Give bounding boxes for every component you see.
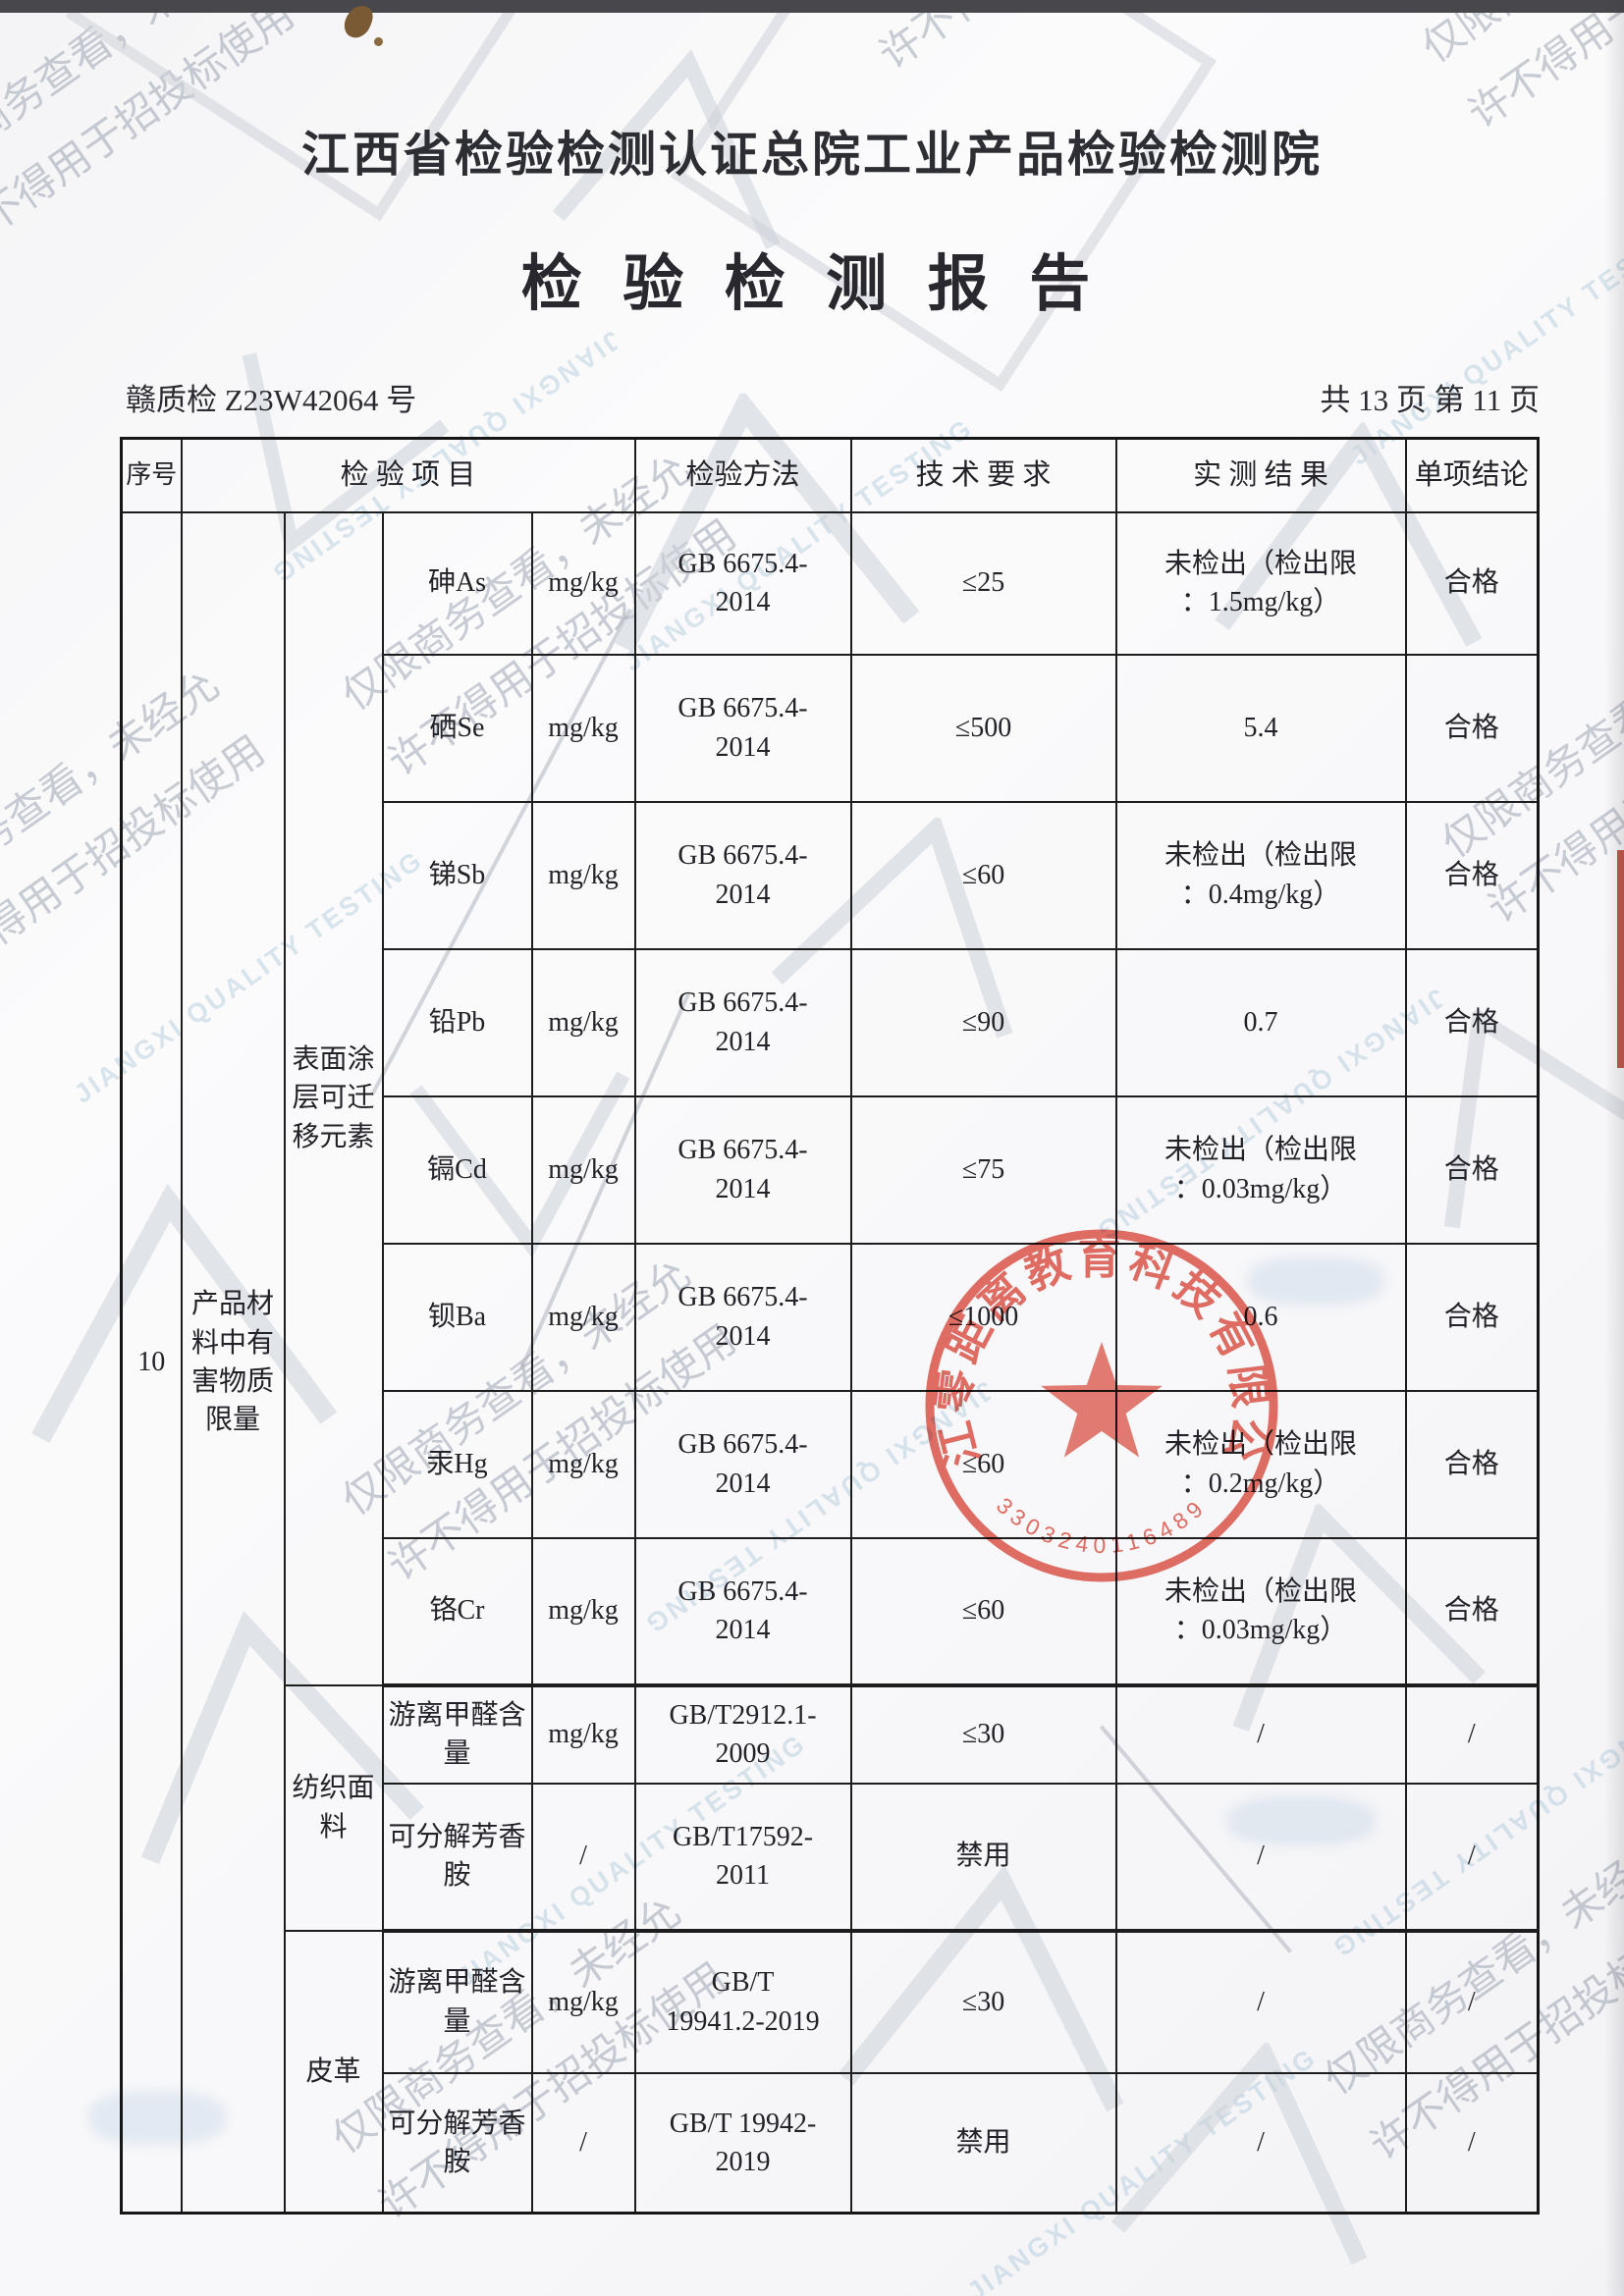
unit-cell: mg/kg: [532, 1931, 635, 2073]
requirement-cell: ≤500: [851, 655, 1116, 802]
conclusion-cell: 合格: [1406, 1391, 1539, 1538]
conclusion-cell: /: [1406, 1685, 1539, 1784]
conclusion-cell: 合格: [1406, 1538, 1539, 1685]
item-name-cell: 铬Cr: [383, 1538, 532, 1685]
unit-cell: mg/kg: [532, 802, 635, 949]
result-cell: 未检出（检出限 ：0.4mg/kg）: [1116, 802, 1406, 949]
scan-red-mark: [1617, 850, 1624, 1068]
stamp-serial-text: 3303240116489: [992, 1492, 1212, 1558]
page-title: 江西省检验检测认证总院工业产品检验检测院: [0, 116, 1624, 186]
method-cell: GB 6675.4- 2014: [635, 1096, 851, 1244]
result-cell: 未检出（检出限 ：1.5mg/kg）: [1116, 512, 1406, 655]
col-header-item: 检 验 项 目: [182, 439, 635, 512]
conclusion-cell: /: [1406, 1931, 1539, 2073]
unit-cell: mg/kg: [532, 655, 635, 802]
square-watermark: [671, 0, 1217, 392]
svg-text:3303240116489: 3303240116489: [992, 1492, 1212, 1558]
page-indicator: 共 13 页 第 11 页: [1320, 375, 1540, 419]
unit-cell: mg/kg: [532, 1096, 635, 1244]
unit-cell: mg/kg: [532, 1244, 635, 1391]
table-row: 纺织面料 游离甲醛含量 mg/kg GB/T2912.1- 2009 ≤30 /…: [122, 1685, 1539, 1784]
report-number: 赣质检 Z23W42064 号: [126, 375, 416, 419]
requirement-cell: ≤25: [851, 512, 1116, 655]
method-cell: GB 6675.4- 2014: [635, 1538, 851, 1685]
requirement-cell: 禁用: [851, 2073, 1116, 2214]
method-cell: GB 6675.4- 2014: [635, 949, 851, 1096]
conclusion-cell: 合格: [1406, 512, 1539, 655]
conclusion-cell: 合格: [1406, 802, 1539, 949]
result-cell: /: [1116, 2073, 1406, 2214]
unit-cell: mg/kg: [532, 512, 635, 655]
col-header-method: 检验方法: [635, 439, 851, 512]
section-label-cell: 纺织面料: [285, 1685, 383, 1931]
requirement-cell: 禁用: [851, 1784, 1116, 1931]
scanned-report-page: 仅限商务查看，未经允 许不得用于招投标使用 仅限商务查看，未经允 许不得用于招投…: [0, 0, 1624, 2296]
scan-edge-top: [0, 0, 1624, 13]
requirement-cell: ≤30: [851, 1931, 1116, 2073]
method-cell: GB/T 19942- 2019: [635, 2073, 851, 2214]
method-cell: GB 6675.4- 2014: [635, 655, 851, 802]
item-name-cell: 硒Se: [383, 655, 532, 802]
company-stamp: 浙江零距离教育科技有限公司 3303240116489: [915, 1219, 1288, 1592]
unit-cell: mg/kg: [532, 1538, 635, 1685]
result-cell: /: [1116, 1931, 1406, 2073]
unit-cell: mg/kg: [532, 1391, 635, 1538]
table-row: 10 产品材料中有害物质限量 表面涂层可迁移元素 砷As mg/kg GB 66…: [122, 512, 1539, 655]
result-cell: /: [1116, 1784, 1406, 1931]
item-name-cell: 砷As: [383, 512, 532, 655]
inspection-table: 序号 检 验 项 目 检验方法 技 术 要 求 实 测 结 果 单项结论 10 …: [120, 437, 1540, 2215]
item-name-cell: 锑Sb: [383, 802, 532, 949]
seq-cell: 10: [122, 512, 182, 2214]
section-label-cell: 表面涂层可迁移元素: [285, 512, 383, 1685]
item-name-cell: 钡Ba: [383, 1244, 532, 1391]
result-cell: /: [1116, 1685, 1406, 1784]
item-name-cell: 铅Pb: [383, 949, 532, 1096]
col-header-requirement: 技 术 要 求: [851, 439, 1116, 512]
item-name-cell: 汞Hg: [383, 1391, 532, 1538]
table-row: 皮革 游离甲醛含量 mg/kg GB/T 19941.2-2019 ≤30 / …: [122, 1931, 1539, 2073]
col-header-seq: 序号: [122, 439, 182, 512]
item-name-cell: 可分解芳香胺: [383, 2073, 532, 2214]
star-icon: [1041, 1342, 1163, 1458]
unit-cell: /: [532, 1784, 635, 1931]
result-cell: 5.4: [1116, 655, 1406, 802]
result-cell: 0.7: [1116, 949, 1406, 1096]
method-cell: GB 6675.4- 2014: [635, 802, 851, 949]
item-name-cell: 游离甲醛含量: [383, 1685, 532, 1784]
col-header-result: 实 测 结 果: [1116, 439, 1406, 512]
report-title: 检 验 检 测 报 告: [0, 234, 1624, 322]
item-name-cell: 游离甲醛含量: [383, 1931, 532, 2073]
method-cell: GB/T2912.1- 2009: [635, 1685, 851, 1784]
unit-cell: /: [532, 2073, 635, 2214]
requirement-cell: ≤30: [851, 1685, 1116, 1784]
item-name-cell: 可分解芳香胺: [383, 1784, 532, 1931]
conclusion-cell: 合格: [1406, 655, 1539, 802]
conclusion-cell: 合格: [1406, 1096, 1539, 1244]
scan-edge-right: [1604, 0, 1624, 2296]
method-cell: GB/T 19941.2-2019: [635, 1931, 851, 2073]
conclusion-cell: 合格: [1406, 1244, 1539, 1391]
method-cell: GB 6675.4- 2014: [635, 1244, 851, 1391]
unit-cell: mg/kg: [532, 949, 635, 1096]
report-reference-line: 赣质检 Z23W42064 号 共 13 页 第 11 页: [126, 375, 1540, 419]
method-cell: GB/T17592- 2011: [635, 1784, 851, 1931]
section-label-cell: 皮革: [285, 1931, 383, 2214]
requirement-cell: ≤90: [851, 949, 1116, 1096]
group-label-cell: 产品材料中有害物质限量: [182, 512, 285, 2214]
conclusion-cell: 合格: [1406, 949, 1539, 1096]
method-cell: GB 6675.4- 2014: [635, 1391, 851, 1538]
item-name-cell: 镉Cd: [383, 1096, 532, 1244]
ink-speck: [374, 37, 383, 46]
col-header-conclusion: 单项结论: [1406, 439, 1539, 512]
conclusion-cell: /: [1406, 1784, 1539, 1931]
unit-cell: mg/kg: [532, 1685, 635, 1784]
table-header-row: 序号 检 验 项 目 检验方法 技 术 要 求 实 测 结 果 单项结论: [122, 439, 1539, 512]
method-cell: GB 6675.4- 2014: [635, 512, 851, 655]
conclusion-cell: /: [1406, 2073, 1539, 2214]
requirement-cell: ≤60: [851, 802, 1116, 949]
